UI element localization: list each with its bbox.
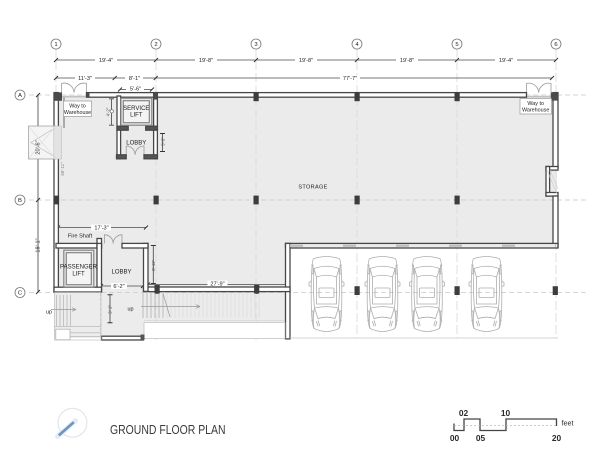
- svg-text:up: up: [46, 310, 52, 316]
- svg-text:PASSENGER: PASSENGER: [60, 265, 98, 271]
- svg-text:feet: feet: [562, 419, 574, 428]
- svg-text:STORAGE: STORAGE: [298, 185, 327, 191]
- svg-text:20'-6": 20'-6": [36, 140, 42, 154]
- svg-text:Warehouse: Warehouse: [64, 110, 91, 116]
- svg-text:19'-8": 19'-8": [299, 58, 313, 64]
- svg-text:19'-8": 19'-8": [400, 58, 414, 64]
- svg-text:20: 20: [552, 433, 562, 443]
- svg-text:3'-1": 3'-1": [108, 305, 113, 314]
- svg-text:Way to: Way to: [527, 101, 544, 107]
- svg-text:C: C: [18, 291, 23, 297]
- svg-text:LOBBY: LOBBY: [126, 141, 146, 147]
- svg-text:77'-7": 77'-7": [343, 76, 357, 82]
- svg-text:LIFT: LIFT: [72, 272, 85, 278]
- svg-text:Warehouse: Warehouse: [522, 108, 549, 114]
- svg-text:8'-11": 8'-11": [151, 260, 156, 271]
- svg-text:19'-4": 19'-4": [499, 58, 513, 64]
- svg-text:6'-2": 6'-2": [113, 284, 124, 290]
- svg-text:LOBBY: LOBBY: [111, 270, 131, 276]
- svg-text:up: up: [128, 307, 134, 313]
- svg-text:B: B: [18, 198, 22, 204]
- svg-text:19'-4": 19'-4": [99, 58, 113, 64]
- svg-text:10: 10: [501, 408, 511, 418]
- svg-text:Way to: Way to: [69, 104, 86, 110]
- svg-text:19'-8": 19'-8": [199, 58, 213, 64]
- svg-text:Fire Shaft: Fire Shaft: [68, 234, 93, 240]
- svg-text:5'-5": 5'-5": [161, 137, 166, 146]
- svg-text:02: 02: [459, 408, 469, 418]
- svg-text:17'-3": 17'-3": [94, 226, 108, 232]
- svg-text:8'-1": 8'-1": [129, 76, 140, 82]
- svg-text:00: 00: [450, 433, 460, 443]
- svg-text:2: 2: [154, 42, 157, 48]
- svg-text:5'-6": 5'-6": [130, 87, 141, 93]
- svg-text:11'-3": 11'-3": [78, 76, 92, 82]
- svg-text:LIFT: LIFT: [130, 113, 143, 119]
- svg-text:68'-11": 68'-11": [60, 162, 65, 176]
- svg-text:18'-1": 18'-1": [36, 238, 42, 252]
- svg-text:1: 1: [54, 42, 57, 48]
- svg-text:SERVICE: SERVICE: [123, 106, 149, 112]
- svg-text:GROUND FLOOR PLAN: GROUND FLOOR PLAN: [110, 422, 226, 437]
- svg-text:A: A: [18, 93, 22, 99]
- svg-text:05: 05: [476, 433, 486, 443]
